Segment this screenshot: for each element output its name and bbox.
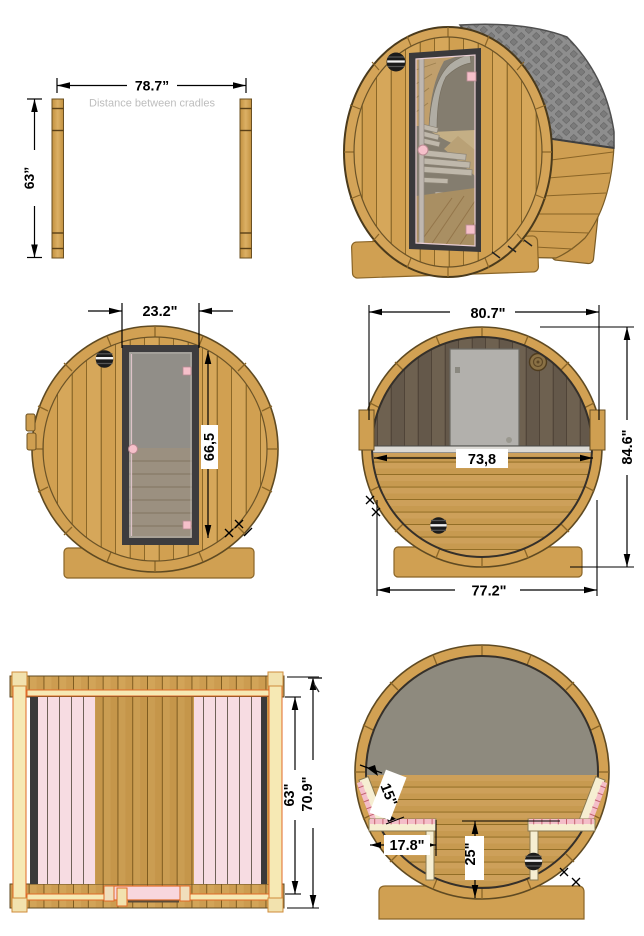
svg-text:63": 63" bbox=[282, 783, 298, 806]
svg-text:25": 25" bbox=[463, 842, 479, 865]
svg-text:70.9": 70.9" bbox=[300, 776, 316, 811]
svg-text:77.2": 77.2" bbox=[471, 584, 506, 600]
svg-text:Distance between cradles: Distance between cradles bbox=[89, 98, 215, 110]
svg-text:23.2": 23.2" bbox=[142, 304, 177, 320]
svg-text:73,8: 73,8 bbox=[468, 452, 496, 468]
svg-text:84.6": 84.6" bbox=[620, 429, 636, 464]
svg-text:66,5: 66,5 bbox=[202, 433, 218, 461]
svg-text:17.8": 17.8" bbox=[389, 838, 424, 854]
svg-text:78.7”: 78.7” bbox=[135, 78, 169, 94]
svg-text:80.7": 80.7" bbox=[470, 306, 505, 322]
svg-text:63”: 63” bbox=[21, 167, 37, 190]
